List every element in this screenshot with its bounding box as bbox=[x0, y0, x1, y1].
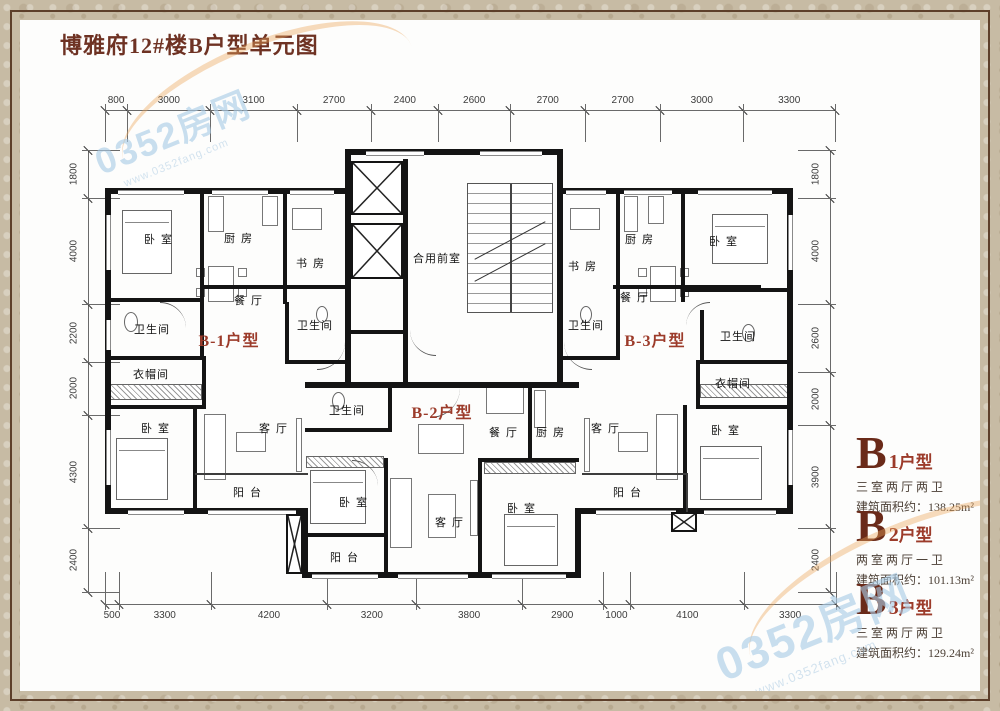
extension-line bbox=[371, 104, 372, 142]
room-label: 客厅 bbox=[259, 420, 293, 436]
wall bbox=[616, 302, 620, 360]
window bbox=[312, 574, 378, 579]
extension-line bbox=[798, 304, 836, 305]
page-title: 博雅府12#楼B户型单元图 bbox=[60, 28, 319, 60]
wall bbox=[285, 302, 289, 364]
extension-line bbox=[211, 572, 212, 610]
room-label: 客厅 bbox=[591, 420, 625, 436]
room-label: 卧室 bbox=[339, 494, 373, 510]
stove bbox=[262, 196, 278, 226]
bed bbox=[504, 514, 558, 566]
extension-line bbox=[82, 362, 120, 363]
dimension-label: 2400 bbox=[69, 549, 80, 571]
wall bbox=[193, 405, 197, 512]
wall bbox=[700, 405, 791, 409]
extension-line bbox=[836, 572, 837, 610]
window bbox=[704, 510, 776, 515]
sofa bbox=[656, 414, 678, 480]
room-label: 卫生间 bbox=[720, 328, 756, 344]
extension-line bbox=[82, 198, 120, 199]
room-label: 衣帽间 bbox=[133, 366, 169, 382]
bed bbox=[700, 446, 762, 500]
wall bbox=[305, 428, 392, 432]
unit-area: 建筑面积约：129.24m² bbox=[856, 644, 996, 661]
unit-suffix: 户型 bbox=[899, 453, 933, 472]
dimension-label: 1800 bbox=[69, 163, 80, 185]
wall bbox=[105, 298, 204, 302]
wall bbox=[345, 192, 351, 388]
dimension-label: 2700 bbox=[323, 95, 345, 106]
room-label: 卫生间 bbox=[297, 317, 333, 333]
dimension-label: 2600 bbox=[811, 327, 822, 349]
dimension-label: 3300 bbox=[778, 95, 800, 106]
wall bbox=[696, 360, 700, 409]
unit-info-heading: B1户型 bbox=[856, 436, 996, 474]
desk bbox=[292, 208, 322, 230]
extension-line bbox=[585, 104, 586, 142]
room-label: 餐厅 bbox=[489, 424, 523, 440]
extension-line bbox=[510, 104, 511, 142]
room-label: 卧室 bbox=[507, 500, 541, 516]
room-label: 书房 bbox=[296, 255, 330, 271]
extension-line bbox=[82, 150, 120, 151]
wall bbox=[683, 288, 791, 292]
extension-line bbox=[798, 198, 836, 199]
unit-layout: 三室两厅两卫 bbox=[856, 624, 996, 641]
unit-info-heading: B3户型 bbox=[856, 582, 996, 620]
kitchen-counter bbox=[534, 390, 546, 428]
room-label: 阳台 bbox=[330, 549, 364, 565]
kitchen-counter bbox=[624, 196, 638, 232]
wardrobe bbox=[108, 384, 202, 400]
dimension-label: 500 bbox=[104, 610, 121, 621]
window bbox=[398, 574, 468, 579]
wardrobe bbox=[306, 456, 384, 468]
dimension-line bbox=[105, 110, 835, 111]
wall bbox=[202, 356, 206, 409]
extension-line bbox=[798, 372, 836, 373]
window bbox=[118, 190, 184, 195]
shaft bbox=[286, 514, 303, 574]
dimension-label: 2600 bbox=[463, 95, 485, 106]
dimension-label: 3200 bbox=[361, 610, 383, 621]
wall bbox=[305, 533, 388, 537]
window bbox=[128, 510, 184, 515]
tv-cabinet bbox=[584, 418, 590, 472]
extension-line bbox=[630, 572, 631, 610]
unit-suffix: 户型 bbox=[899, 599, 933, 618]
wall bbox=[528, 386, 532, 460]
dimension-label: 3300 bbox=[154, 610, 176, 621]
wardrobe bbox=[484, 462, 576, 474]
dimension-label: 3000 bbox=[691, 95, 713, 106]
staircase bbox=[467, 183, 553, 313]
dimension-label: 1000 bbox=[605, 610, 627, 621]
extension-line bbox=[105, 572, 106, 610]
door-arc bbox=[317, 342, 345, 370]
wall bbox=[403, 159, 408, 385]
balcony-wall bbox=[686, 473, 688, 512]
room-label: 餐厅 bbox=[620, 289, 654, 305]
wall bbox=[105, 356, 205, 360]
unit-suffix: 户型 bbox=[899, 526, 933, 545]
room-label: 餐厅 bbox=[234, 292, 268, 308]
extension-line bbox=[744, 572, 745, 610]
wall bbox=[700, 360, 791, 364]
kitchen-counter bbox=[208, 196, 224, 232]
extension-line bbox=[835, 104, 836, 142]
dimension-label: 2400 bbox=[811, 549, 822, 571]
dimension-label: 3000 bbox=[158, 95, 180, 106]
room-label: 卧室 bbox=[709, 233, 743, 249]
extension-line bbox=[798, 425, 836, 426]
window bbox=[212, 190, 268, 195]
desk bbox=[570, 208, 600, 230]
unit-letter: B bbox=[856, 500, 887, 551]
room-label: 厨房 bbox=[625, 231, 659, 247]
elevator-shaft bbox=[351, 223, 403, 279]
extension-line bbox=[603, 572, 604, 610]
room-label: 卫生间 bbox=[568, 317, 604, 333]
unit-type-label: B-2户型 bbox=[411, 399, 472, 423]
unit-number: 2 bbox=[889, 524, 899, 546]
window bbox=[698, 190, 772, 195]
dimension-label: 4100 bbox=[676, 610, 698, 621]
dimension-line bbox=[105, 604, 836, 605]
balcony-wall bbox=[195, 473, 308, 475]
dimension-label: 3100 bbox=[242, 95, 264, 106]
watermark-url: www.0352fang.com bbox=[122, 124, 262, 190]
wall bbox=[575, 508, 581, 578]
dimension-label: 2700 bbox=[612, 95, 634, 106]
chair bbox=[638, 268, 647, 277]
extension-line bbox=[798, 592, 836, 593]
chair bbox=[238, 268, 247, 277]
unit-type-label: B-3户型 bbox=[624, 327, 685, 351]
room-label: 合用前室 bbox=[413, 250, 461, 266]
window bbox=[492, 574, 566, 579]
room-label: 卧室 bbox=[141, 420, 175, 436]
elevator-shaft bbox=[351, 161, 403, 215]
balcony-wall bbox=[582, 473, 688, 475]
window bbox=[290, 190, 334, 195]
room-label: 衣帽间 bbox=[715, 375, 751, 391]
window bbox=[480, 151, 542, 156]
dimension-label: 4000 bbox=[811, 239, 822, 261]
dimension-label: 2000 bbox=[69, 377, 80, 399]
extension-line bbox=[798, 528, 836, 529]
frame-border bbox=[0, 691, 1000, 711]
dimension-label: 2400 bbox=[394, 95, 416, 106]
unit-letter: B bbox=[856, 427, 887, 478]
room-label: 厨房 bbox=[536, 424, 570, 440]
dimension-label: 2000 bbox=[811, 388, 822, 410]
dimension-label: 3900 bbox=[811, 466, 822, 488]
extension-line bbox=[82, 592, 120, 593]
watermark-brand: 0352房网 bbox=[86, 76, 258, 186]
window bbox=[788, 430, 793, 485]
dimension-label: 800 bbox=[108, 95, 125, 106]
extension-line bbox=[82, 528, 120, 529]
wall bbox=[388, 386, 392, 432]
watermark: 0352房网 www.0352fang.com bbox=[86, 76, 262, 197]
extension-line bbox=[210, 104, 211, 142]
extension-line bbox=[105, 104, 106, 142]
wall bbox=[105, 405, 206, 409]
extension-line bbox=[119, 572, 120, 610]
dimension-label: 4300 bbox=[69, 460, 80, 482]
room-label: 客厅 bbox=[435, 514, 469, 530]
unit-letter: B bbox=[856, 573, 887, 624]
shaft bbox=[671, 512, 697, 532]
wall bbox=[478, 458, 482, 576]
room-label: 卧室 bbox=[144, 231, 178, 247]
dimension-label: 1800 bbox=[811, 163, 822, 185]
window bbox=[788, 215, 793, 270]
extension-line bbox=[82, 304, 120, 305]
extension-line bbox=[82, 415, 120, 416]
door-arc bbox=[686, 302, 710, 326]
sofa bbox=[390, 478, 412, 548]
dimension-label: 2900 bbox=[551, 610, 573, 621]
window bbox=[106, 430, 111, 485]
extension-line bbox=[438, 104, 439, 142]
window bbox=[208, 510, 296, 515]
extension-line bbox=[297, 104, 298, 142]
wall bbox=[305, 382, 579, 388]
window bbox=[106, 215, 111, 270]
frame-border bbox=[980, 0, 1000, 711]
dimension-label: 3300 bbox=[779, 610, 801, 621]
window bbox=[106, 320, 111, 350]
room-label: 卫生间 bbox=[134, 321, 170, 337]
dimension-label: 2200 bbox=[69, 321, 80, 343]
wall bbox=[204, 285, 349, 289]
unit-info-heading: B2户型 bbox=[856, 509, 996, 547]
wall bbox=[285, 360, 348, 364]
window bbox=[366, 151, 424, 156]
unit-layout: 三室两厅两卫 bbox=[856, 478, 996, 495]
floorplan-page: 博雅府12#楼B户型单元图 卧室厨房书房餐厅卫生间卫生间衣帽间卧室客厅阳台卫生间… bbox=[0, 0, 1000, 711]
extension-line bbox=[743, 104, 744, 142]
extension-line bbox=[798, 150, 836, 151]
room-label: 阳台 bbox=[613, 484, 647, 500]
room-label: 卫生间 bbox=[329, 402, 365, 418]
wall bbox=[384, 458, 388, 576]
tv-cabinet bbox=[470, 480, 478, 536]
dimension-line bbox=[88, 150, 89, 592]
extension-line bbox=[660, 104, 661, 142]
unit-number: 3 bbox=[889, 597, 899, 619]
dimension-label: 4200 bbox=[258, 610, 280, 621]
frame-border bbox=[0, 0, 1000, 20]
wall bbox=[563, 356, 620, 360]
wall bbox=[482, 458, 579, 462]
room-label: 厨房 bbox=[224, 230, 258, 246]
window bbox=[566, 190, 606, 195]
dimension-label: 2700 bbox=[537, 95, 559, 106]
room-label: 阳台 bbox=[233, 484, 267, 500]
window bbox=[624, 190, 672, 195]
frame-border bbox=[0, 0, 20, 711]
wall bbox=[348, 330, 403, 334]
dimension-label: 3800 bbox=[458, 610, 480, 621]
unit-layout: 两室两厅一卫 bbox=[856, 551, 996, 568]
dining-table bbox=[486, 386, 524, 414]
room-label: 卧室 bbox=[711, 422, 745, 438]
unit-info-b3: B3户型 三室两厅两卫 建筑面积约：129.24m² bbox=[856, 582, 996, 661]
bed bbox=[116, 438, 168, 500]
stair-divider bbox=[510, 184, 512, 312]
unit-number: 1 bbox=[889, 451, 899, 473]
dimension-label: 4000 bbox=[69, 239, 80, 261]
dining-table bbox=[208, 266, 234, 302]
tv-cabinet bbox=[296, 418, 302, 472]
unit-type-label: B-1户型 bbox=[198, 327, 259, 351]
door-arc bbox=[410, 330, 436, 356]
desk bbox=[418, 424, 464, 454]
stove bbox=[648, 196, 664, 224]
sofa bbox=[204, 414, 226, 480]
extension-line bbox=[127, 104, 128, 142]
room-label: 书房 bbox=[568, 258, 602, 274]
wall bbox=[700, 310, 704, 360]
window bbox=[596, 510, 676, 515]
